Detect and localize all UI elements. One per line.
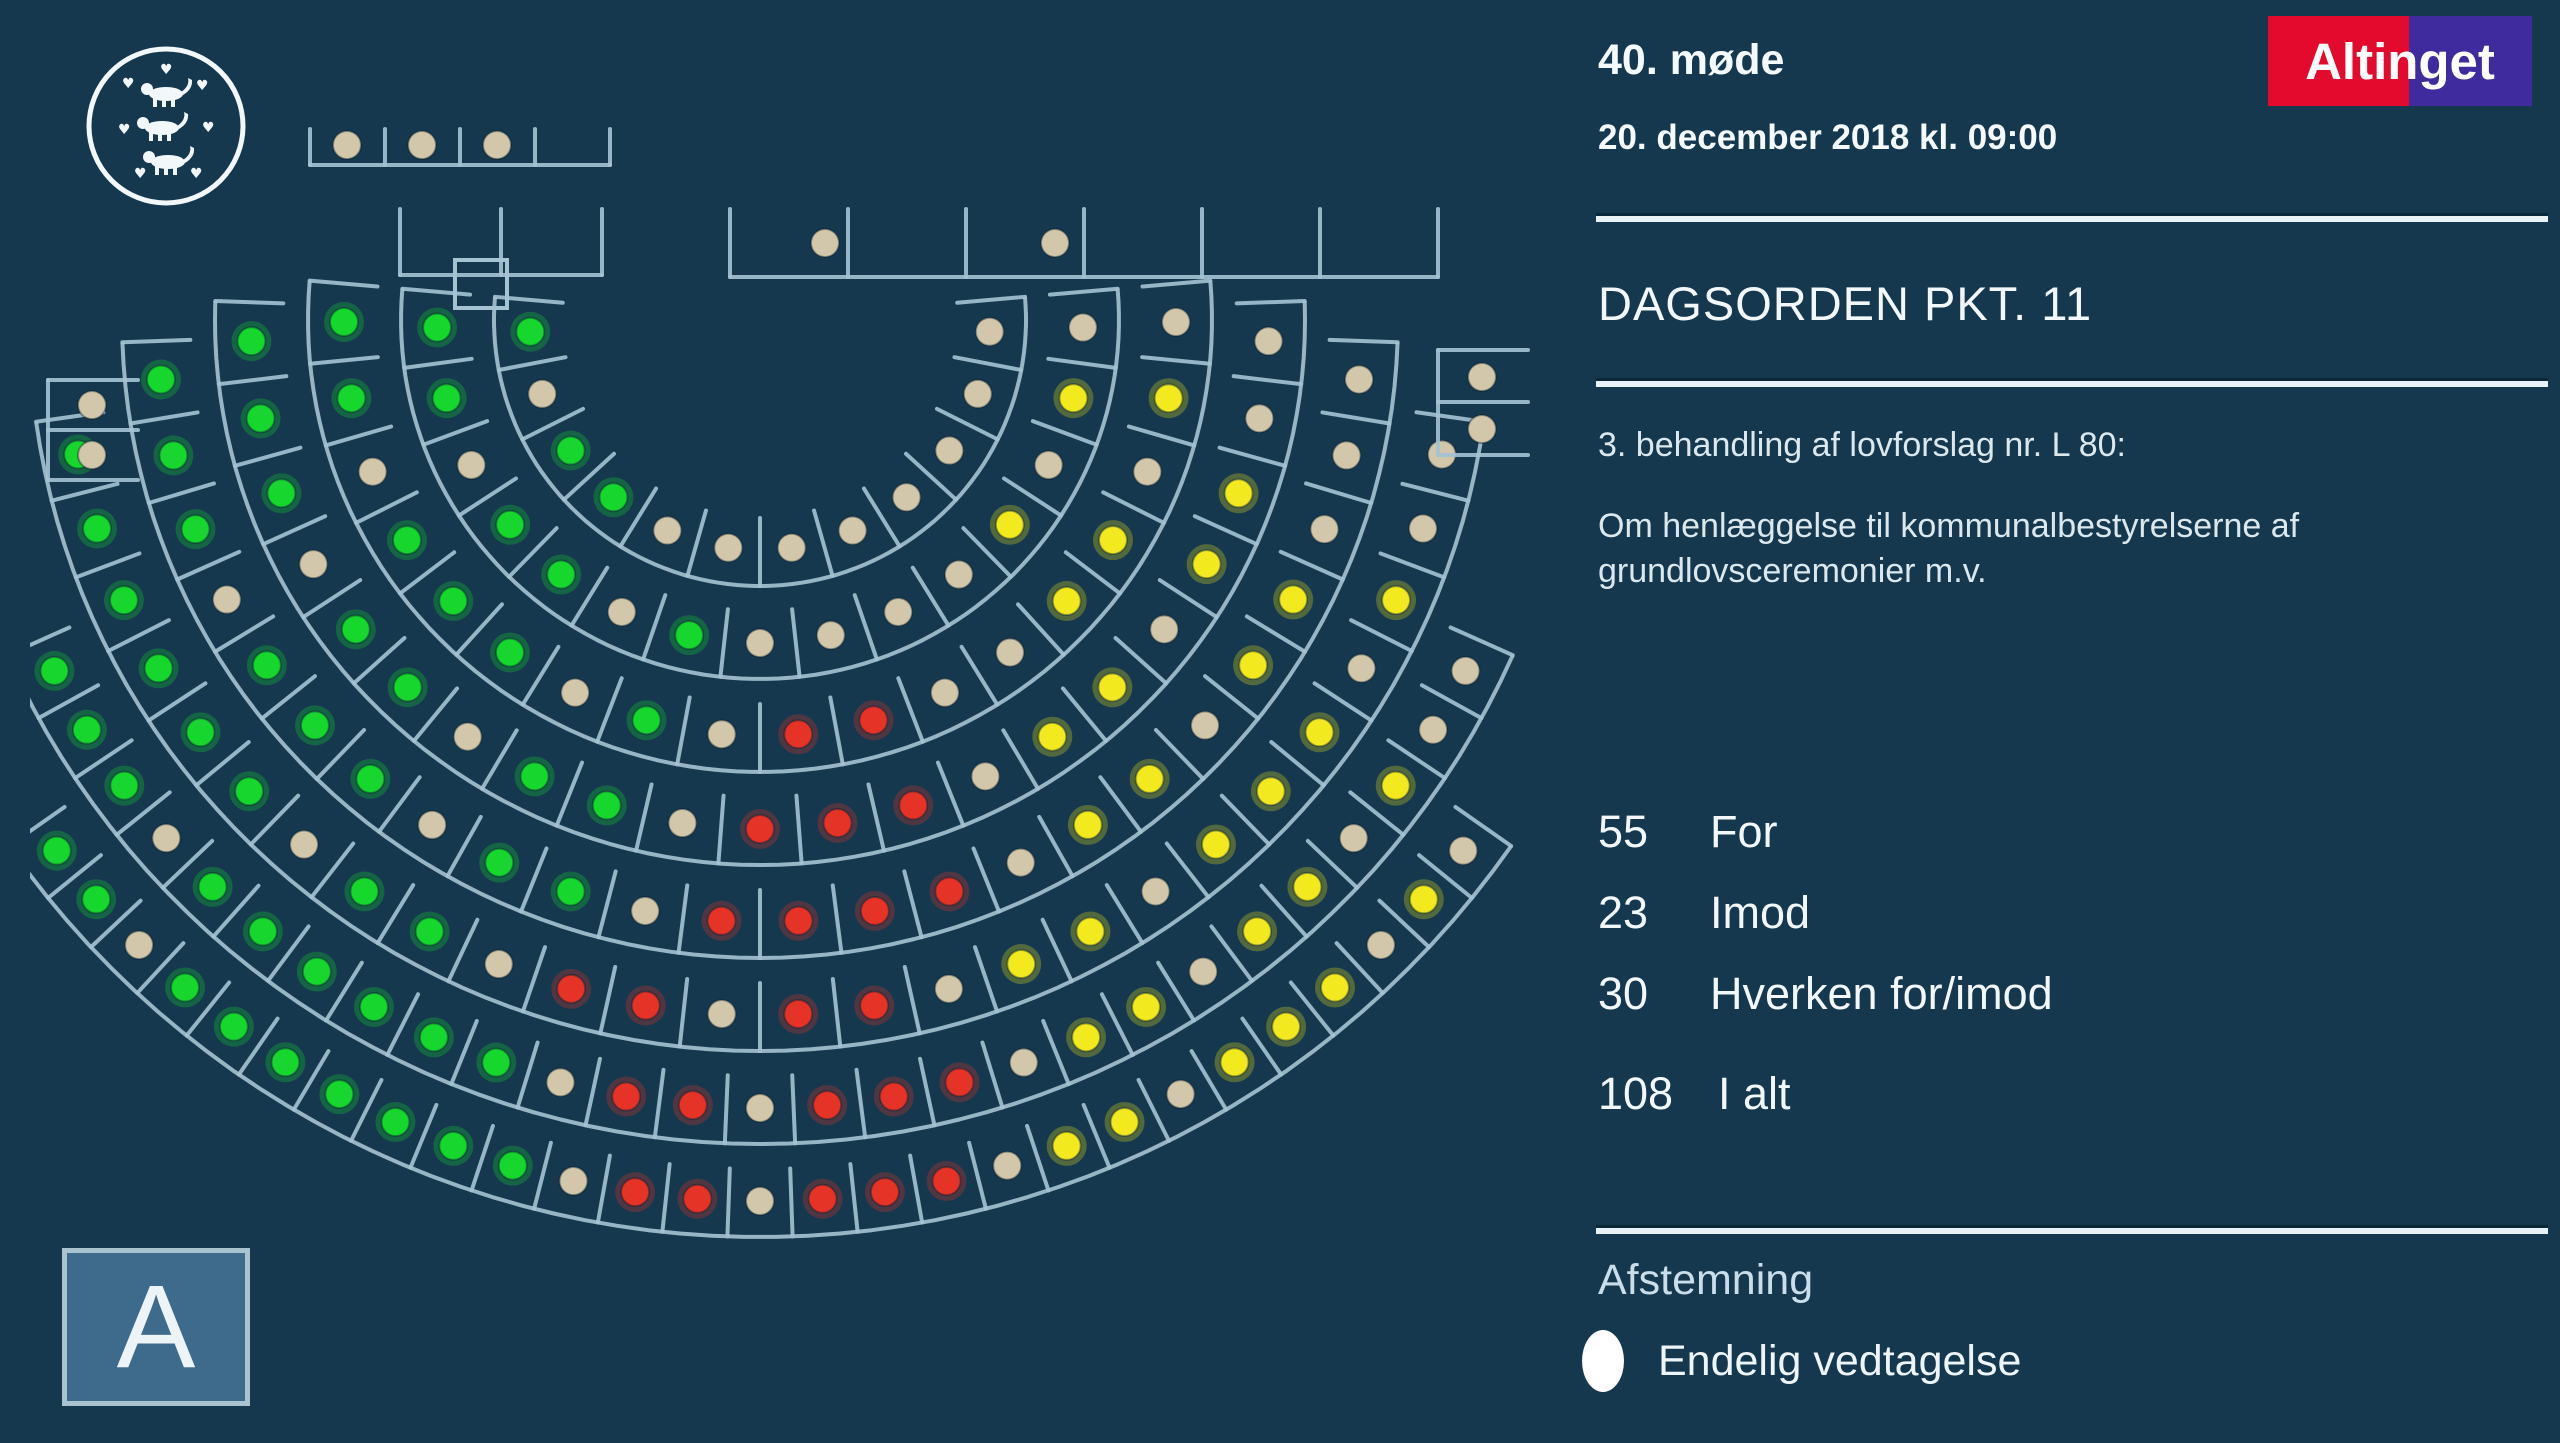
- seat-divider-line: [215, 301, 283, 303]
- seat-dot: [147, 365, 175, 393]
- seat-dot: [933, 1167, 961, 1195]
- result-row-hverken: 30 Hverken for/imod: [1598, 968, 2053, 1020]
- seat-divider-line: [830, 698, 842, 765]
- seat-dot: [1293, 873, 1321, 901]
- vote-type-bullet-icon: [1582, 1330, 1624, 1392]
- seat-dot: [271, 1048, 299, 1076]
- seat-divider-line: [499, 357, 566, 370]
- seat-dot: [199, 873, 227, 901]
- seat-divider-line: [833, 885, 842, 952]
- seat-dot: [1279, 586, 1307, 614]
- seat-divider-line: [122, 340, 190, 342]
- seat-dot: [359, 458, 387, 486]
- seat-divider-line: [855, 595, 877, 659]
- seat-dot: [976, 318, 1004, 346]
- seat-dot: [561, 679, 589, 707]
- seat-divider-line: [1043, 920, 1072, 982]
- seat-divider-line: [1048, 359, 1115, 368]
- divider-agenda: [1596, 381, 2548, 387]
- seat-dot: [784, 720, 812, 748]
- seat-dot: [1347, 654, 1375, 682]
- seat-dot: [1007, 950, 1035, 978]
- seat-dot: [496, 638, 524, 666]
- seat-divider-line: [868, 785, 883, 851]
- svg-text:♥: ♥: [160, 62, 173, 78]
- seat-dot: [746, 815, 774, 843]
- seat-divider-line: [898, 678, 922, 741]
- seat-dot: [1162, 308, 1190, 336]
- seat-divider-line: [402, 289, 470, 295]
- seat-divider-line: [718, 796, 723, 864]
- seat-dot: [43, 837, 71, 865]
- seat-divider-line: [790, 1168, 792, 1236]
- seat-divider-line: [969, 1143, 986, 1209]
- svg-text:♥: ♥: [122, 76, 135, 92]
- hverken-label: Hverken for/imod: [1710, 968, 2053, 1020]
- seat-dot: [557, 877, 585, 905]
- seat-dot: [964, 380, 992, 408]
- logo-text: Altinget: [2268, 16, 2532, 106]
- seat-dot: [1010, 1049, 1038, 1077]
- seat-dot: [439, 587, 467, 615]
- seat-divider-line: [680, 979, 687, 1047]
- party-letter-box: A: [62, 1248, 250, 1406]
- seat-dot: [237, 327, 265, 355]
- seat-divider-line: [518, 1043, 538, 1108]
- seat-dot: [159, 441, 187, 469]
- agenda-title: DAGSORDEN PKT. 11: [1598, 276, 2092, 331]
- seat-dot: [213, 586, 241, 614]
- seat-divider-line: [410, 1105, 436, 1168]
- seat-dot: [301, 711, 329, 739]
- seat-dot: [416, 917, 444, 945]
- seat-divider-line: [938, 763, 963, 826]
- seat-divider-line: [600, 967, 615, 1033]
- seat-dot: [557, 975, 585, 1003]
- hverken-count: 30: [1598, 968, 1684, 1020]
- seat-dot: [860, 706, 888, 734]
- seat-dot: [1035, 451, 1063, 479]
- seat-dot: [249, 917, 277, 945]
- seat-dot: [83, 515, 111, 543]
- seat-divider-line: [1330, 340, 1398, 342]
- seat-dot: [1076, 917, 1104, 945]
- seat-divider-line: [310, 357, 378, 364]
- seat-divider-line: [557, 763, 582, 826]
- seat-divider-line: [404, 359, 471, 368]
- seat-dot: [679, 1091, 707, 1119]
- seat-dot: [559, 1167, 587, 1195]
- seat-divider-line: [910, 1156, 922, 1223]
- seat-dot: [1333, 441, 1361, 469]
- seat-divider-line: [1107, 885, 1143, 943]
- seat-dot: [813, 1091, 841, 1119]
- seat-divider-line: [677, 698, 689, 765]
- divider-top: [1596, 216, 2548, 222]
- seat-divider-line: [814, 510, 833, 575]
- seat-dot: [40, 657, 68, 685]
- seat-dot: [935, 877, 963, 905]
- seat-dot: [547, 561, 575, 589]
- seat-dot: [817, 621, 845, 649]
- seat-dot: [1410, 885, 1438, 913]
- seat-dot: [935, 437, 963, 465]
- seat-dot: [485, 950, 513, 978]
- seat-divider-line: [1103, 492, 1164, 523]
- seat-dot: [714, 534, 742, 562]
- seat-divider-line: [655, 1070, 664, 1137]
- seat-dot: [356, 765, 384, 793]
- seat-divider-line: [534, 1143, 551, 1209]
- seat-divider-line: [1084, 1105, 1110, 1168]
- seat-divider-line: [679, 885, 688, 952]
- seat-divider-line: [1033, 421, 1097, 445]
- seat-divider-line: [30, 627, 69, 655]
- seat-dot: [708, 907, 736, 935]
- seat-divider-line: [1129, 427, 1194, 446]
- seat-dot: [350, 877, 378, 905]
- result-row-for: 55 For: [1598, 806, 2053, 858]
- seat-dot: [330, 308, 358, 336]
- seat-dot: [220, 1013, 248, 1041]
- seat-divider-line: [727, 1168, 729, 1236]
- seat-dot: [393, 526, 421, 554]
- seat-dot: [78, 441, 106, 469]
- seat-divider-line: [482, 730, 517, 788]
- seat-divider-line: [597, 678, 621, 741]
- seat-dot: [860, 992, 888, 1020]
- seat-dot: [675, 621, 703, 649]
- seat-dot: [784, 907, 812, 935]
- seat-dot: [1132, 993, 1160, 1021]
- seat-dot: [1072, 1023, 1100, 1051]
- total-count: 108: [1598, 1068, 1684, 1120]
- seat-divider-line: [1237, 301, 1305, 303]
- seat-dot: [454, 723, 482, 751]
- seat-dot: [1191, 711, 1219, 739]
- seat-dot: [1038, 723, 1066, 751]
- seat-dot: [186, 718, 214, 746]
- seat-divider-line: [636, 785, 651, 851]
- seat-dot: [746, 1187, 774, 1215]
- seat-dot: [809, 1185, 837, 1213]
- seat-divider-line: [523, 947, 545, 1011]
- seat-dot: [931, 679, 959, 707]
- seat-dot: [1257, 777, 1285, 805]
- seat-dot: [482, 1049, 510, 1077]
- seat-dot: [342, 615, 370, 643]
- seat-divider-line: [920, 1059, 934, 1125]
- seat-dot: [1189, 958, 1217, 986]
- seat-dot: [1142, 877, 1170, 905]
- seat-divider-line: [1220, 448, 1286, 466]
- seat-dot: [423, 314, 451, 342]
- seat-dot: [1069, 314, 1097, 342]
- seat-dot: [408, 131, 436, 159]
- seat-dot: [1419, 716, 1447, 744]
- seat-dot: [631, 897, 659, 925]
- seat-dot: [1053, 587, 1081, 615]
- seat-divider-line: [792, 1075, 795, 1143]
- seat-divider-line: [1451, 627, 1513, 655]
- seat-divider-line: [792, 609, 800, 677]
- seat-dot: [1306, 718, 1334, 746]
- seat-divider-line: [1043, 1021, 1068, 1084]
- seat-divider-line: [76, 553, 140, 577]
- seat-dot: [1059, 384, 1087, 412]
- seat-dot: [420, 1023, 448, 1051]
- seat-divider-line: [1142, 357, 1210, 364]
- seat-dot: [1468, 363, 1496, 391]
- seat-divider-line: [937, 409, 998, 440]
- seat-dot: [303, 958, 331, 986]
- seat-divider-line: [850, 1164, 857, 1232]
- seat-divider-line: [643, 595, 665, 659]
- seat-dot: [708, 1000, 736, 1028]
- seat-dot: [996, 638, 1024, 666]
- seat-dot: [1382, 586, 1410, 614]
- seat-dot: [1098, 673, 1126, 701]
- seat-dot: [325, 1080, 353, 1108]
- seat-divider-line: [1322, 412, 1389, 423]
- vote-results: 55 For 23 Imod 30 Hverken for/imod 108 I…: [1598, 806, 2053, 1149]
- seat-dot: [1111, 1108, 1139, 1136]
- seat-divider-line: [447, 817, 480, 876]
- seat-dot: [1272, 1013, 1300, 1041]
- seat-dot: [1193, 550, 1221, 578]
- afstemning-heading: Afstemning: [1598, 1256, 1813, 1305]
- seat-dot: [485, 849, 513, 877]
- seat-dot: [1007, 849, 1035, 877]
- seat-dot: [1243, 917, 1271, 945]
- imod-count: 23: [1598, 887, 1684, 939]
- seat-dot: [839, 517, 867, 545]
- seat-dot: [1239, 651, 1267, 679]
- seat-dot: [1202, 831, 1230, 859]
- seat-dot: [418, 811, 446, 839]
- seat-divider-line: [982, 1043, 1002, 1108]
- vote-type-label: Endelig vedtagelse: [1658, 1337, 2021, 1386]
- seat-dot: [811, 229, 839, 257]
- seat-divider-line: [662, 1164, 669, 1232]
- seat-divider-line: [235, 448, 301, 466]
- seat-dot: [935, 975, 963, 1003]
- for-label: For: [1710, 806, 1778, 858]
- seat-dot: [946, 1068, 974, 1096]
- seat-dot: [653, 517, 681, 545]
- seat-divider-line: [1143, 281, 1211, 287]
- seat-dot: [433, 384, 461, 412]
- seat-dot: [708, 720, 736, 748]
- party-letter: A: [117, 1259, 196, 1395]
- seat-dot: [1053, 1132, 1081, 1160]
- seat-divider-line: [975, 947, 997, 1011]
- seat-dot: [171, 974, 199, 1002]
- seat-divider-line: [108, 620, 169, 651]
- seat-dot: [1310, 515, 1338, 543]
- seat-divider-line: [586, 1059, 600, 1125]
- seat-dot: [253, 651, 281, 679]
- seat-dot: [499, 1152, 527, 1180]
- total-label: I alt: [1718, 1068, 1791, 1120]
- seat-divider-line: [1306, 483, 1371, 503]
- seat-dot: [299, 550, 327, 578]
- seat-dot: [824, 809, 852, 837]
- seat-dot: [1099, 526, 1127, 554]
- seat-dot: [125, 931, 153, 959]
- seat-divider-line: [905, 967, 920, 1033]
- seat-dot: [1367, 931, 1395, 959]
- seat-divider-line: [177, 552, 239, 580]
- seat-dot: [521, 762, 549, 790]
- seat-dot: [884, 598, 912, 626]
- seat-divider-line: [521, 848, 546, 911]
- seat-dot: [394, 673, 422, 701]
- seat-dot: [945, 561, 973, 589]
- seat-dot: [483, 131, 511, 159]
- seat-divider-line: [957, 297, 1025, 303]
- seat-divider-line: [1195, 516, 1257, 544]
- seat-divider-line: [1160, 580, 1217, 617]
- seat-dot: [267, 479, 295, 507]
- seat-dot: [152, 824, 180, 852]
- seat-divider-line: [219, 376, 287, 384]
- seat-dot: [1321, 974, 1349, 1002]
- seat-divider-line: [856, 1070, 865, 1137]
- seat-dot: [746, 1094, 774, 1122]
- seat-dot: [1150, 615, 1178, 643]
- seat-dot: [1074, 811, 1102, 839]
- seat-dot: [557, 437, 585, 465]
- seat-dot: [496, 511, 524, 539]
- seat-divider-line: [448, 920, 477, 982]
- seat-dot: [608, 598, 636, 626]
- seat-dot: [861, 897, 889, 925]
- seat-dot: [1245, 404, 1273, 432]
- seat-dot: [1136, 765, 1164, 793]
- seat-dot: [145, 654, 173, 682]
- seat-dot: [1452, 657, 1480, 685]
- seat-divider-line: [913, 568, 949, 626]
- meeting-datetime: 20. december 2018 kl. 09:00: [1598, 118, 2057, 158]
- seat-dot: [668, 809, 696, 837]
- seat-dot: [971, 762, 999, 790]
- seat-dot: [1221, 1048, 1249, 1076]
- seat-divider-line: [1050, 289, 1118, 295]
- seat-dot: [381, 1108, 409, 1136]
- seat-dot: [996, 511, 1024, 539]
- result-row-total: 108 I alt: [1598, 1068, 2053, 1120]
- seat-divider-line: [1027, 1126, 1048, 1191]
- seat-divider-line: [962, 647, 998, 705]
- seat-dot: [612, 1083, 640, 1111]
- seat-dot: [1449, 837, 1477, 865]
- seat-divider-line: [954, 357, 1021, 370]
- seat-divider-line: [1351, 620, 1412, 651]
- seat-dot: [1345, 365, 1373, 393]
- seat-divider-line: [598, 1156, 610, 1223]
- seat-divider-line: [1422, 685, 1482, 718]
- seat-dot: [1225, 479, 1253, 507]
- imod-label: Imod: [1710, 887, 1810, 939]
- seat-divider-line: [326, 427, 391, 446]
- seat-dot: [82, 885, 110, 913]
- seat-dot: [290, 831, 318, 859]
- seat-divider-line: [720, 609, 728, 677]
- seat-dot: [247, 404, 275, 432]
- seat-divider-line: [1234, 376, 1302, 384]
- seat-divider-line: [687, 510, 706, 575]
- seat-divider-line: [1139, 1080, 1169, 1141]
- seat-dot: [110, 586, 138, 614]
- seat-divider-line: [1381, 553, 1445, 577]
- seat-dot: [333, 131, 361, 159]
- agenda-description: Om henlæggelse til kommunalbestyrelserne…: [1598, 504, 2508, 594]
- seat-dot: [1340, 824, 1368, 852]
- seat-divider-line: [1039, 817, 1072, 876]
- seat-dot: [439, 1132, 467, 1160]
- seat-dot: [746, 629, 774, 657]
- seat-dot: [593, 791, 621, 819]
- seat-dot: [1409, 515, 1437, 543]
- seat-divider-line: [423, 421, 487, 445]
- seat-dot: [871, 1178, 899, 1206]
- seat-dot: [632, 992, 660, 1020]
- seat-dot: [73, 716, 101, 744]
- seat-divider-line: [149, 483, 214, 503]
- seat-dot: [78, 391, 106, 419]
- seat-dot: [182, 515, 210, 543]
- seat-divider-line: [356, 492, 417, 523]
- svg-text:♥: ♥: [196, 78, 209, 94]
- seat-dot: [360, 993, 388, 1021]
- seat-divider-line: [472, 1126, 493, 1191]
- seat-dot: [546, 1068, 574, 1096]
- seat-divider-line: [974, 848, 999, 911]
- agenda-case-line: 3. behandling af lovforslag nr. L 80:: [1598, 426, 2126, 465]
- vote-type-row: Endelig vedtagelse: [1582, 1330, 2021, 1392]
- seat-dot: [880, 1083, 908, 1111]
- seat-divider-line: [310, 281, 378, 287]
- seat-dot: [1468, 415, 1496, 443]
- seat-divider-line: [725, 1075, 728, 1143]
- seat-dot: [1167, 1080, 1195, 1108]
- divider-bottom: [1596, 1228, 2548, 1234]
- seat-dot: [1041, 229, 1069, 257]
- seat-dot: [516, 318, 544, 346]
- seat-divider-line: [451, 1021, 476, 1084]
- voting-broadcast-screen: ♥♥♥ ♥♥♥ ♥ Altinget 40. møde 20. december…: [0, 0, 2560, 1443]
- seat-dot: [110, 772, 138, 800]
- seat-divider-line: [833, 979, 840, 1047]
- seat-dot: [893, 483, 921, 511]
- seat-dot: [683, 1185, 711, 1213]
- seat-divider-line: [52, 484, 118, 501]
- seat-dot: [784, 1000, 812, 1028]
- seat-divider-line: [130, 412, 197, 423]
- seat-dot: [1155, 384, 1183, 412]
- seat-dot: [632, 706, 660, 734]
- seat-dot: [235, 777, 263, 805]
- seat-dot: [993, 1152, 1021, 1180]
- altinget-logo: Altinget: [2268, 16, 2532, 106]
- seat-dot: [457, 451, 485, 479]
- seat-dot: [1133, 458, 1161, 486]
- seat-dot: [337, 384, 365, 412]
- seat-dot: [1255, 327, 1283, 355]
- seat-dot: [778, 534, 806, 562]
- seat-dot: [1382, 772, 1410, 800]
